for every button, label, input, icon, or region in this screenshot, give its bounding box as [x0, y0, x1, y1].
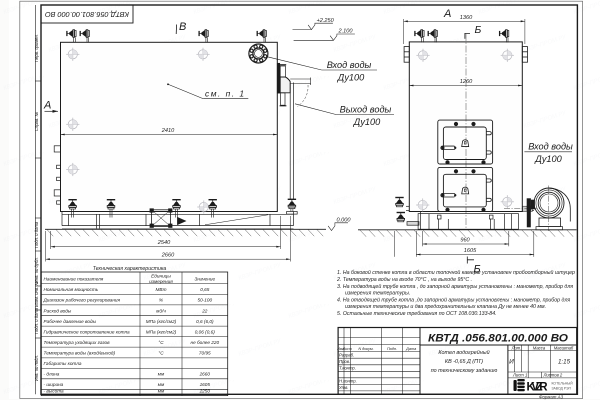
- svg-text:22: 22: [201, 309, 208, 314]
- svg-text:Габариты котла: Габариты котла: [44, 361, 82, 366]
- svg-text:Масса: Масса: [533, 345, 546, 350]
- svg-text:Ду100: Ду100: [534, 154, 562, 164]
- svg-text:КВ -0,65 Д (ПТ): КВ -0,65 Д (ПТ): [445, 359, 483, 365]
- svg-text:А: А: [43, 100, 51, 112]
- svg-text:ЗАВОД РЭП: ЗАВОД РЭП: [552, 386, 572, 390]
- svg-text:2660: 2660: [161, 253, 175, 259]
- svg-text:Расход воды: Расход воды: [44, 309, 72, 314]
- svg-text:70/95: 70/95: [199, 351, 211, 356]
- svg-text:KVZR: KVZR: [527, 382, 549, 394]
- svg-text:МПа (кгс/см2): МПа (кгс/см2): [146, 329, 177, 334]
- svg-text:Подп. и дата: Подп. и дата: [34, 221, 39, 248]
- svg-text:0,65: 0,65: [200, 287, 210, 292]
- svg-text:И: И: [509, 359, 514, 366]
- svg-text:%: %: [159, 298, 163, 303]
- svg-text:1. На боковой стенке котла в: 1. На боковой стенке котла в области топ…: [337, 269, 575, 276]
- svg-text:МВт: МВт: [156, 287, 167, 292]
- svg-text:Подп.: Подп.: [387, 347, 397, 351]
- svg-text:МПа (кгс/см2): МПа (кгс/см2): [146, 319, 177, 324]
- svg-text:измерения температуры.: измерения температуры.: [345, 291, 410, 297]
- svg-text:4. На отводящей трубе котла ,: 4. На отводящей трубе котла ,до запорной…: [337, 297, 570, 304]
- svg-text:КОТЕЛЬНЫЙ: КОТЕЛЬНЫЙ: [552, 382, 574, 386]
- svg-text:Инв. № подл.: Инв. № подл.: [34, 355, 39, 381]
- svg-text:Номинальная мощность: Номинальная мощность: [44, 287, 99, 292]
- svg-text:Масштаб: Масштаб: [554, 345, 574, 350]
- svg-text:измерения: измерения: [149, 279, 173, 284]
- svg-text:Справ. №: Справ. №: [34, 112, 39, 131]
- svg-text:1605: 1605: [200, 382, 211, 387]
- svg-text:по техническому заданию: по техническому заданию: [431, 368, 498, 374]
- svg-text:Вход воды: Вход воды: [528, 142, 573, 152]
- svg-text:Котел водогрейный: Котел водогрейный: [438, 349, 489, 356]
- svg-text:Утв.: Утв.: [339, 385, 349, 390]
- svg-text:измерения температуры и два пр: измерения температуры и два предохраните…: [345, 304, 546, 310]
- svg-text:Пров.: Пров.: [339, 359, 350, 364]
- svg-text:50-100: 50-100: [197, 298, 212, 303]
- svg-text:0.000: 0.000: [337, 218, 352, 224]
- svg-text:Диапазон рабочего регулировани: Диапазон рабочего регулирования: [43, 298, 121, 303]
- svg-text:мм: мм: [158, 372, 165, 377]
- svg-text:2.100: 2.100: [338, 29, 354, 35]
- svg-text:Наименование показателя: Наименование показателя: [44, 277, 104, 282]
- svg-text:+2.250: +2.250: [317, 18, 335, 24]
- svg-text:В: В: [179, 21, 186, 33]
- svg-text:- длина: - длина: [44, 372, 60, 377]
- svg-text:Ду100: Ду100: [353, 117, 381, 127]
- svg-text:Инв. № дубл.: Инв. № дубл.: [34, 257, 39, 283]
- svg-text:см. п. 1: см. п. 1: [205, 89, 246, 99]
- svg-text:Температура уходящих газов: Температура уходящих газов: [44, 340, 111, 345]
- svg-text:КВТД.056.801.00.000 ВО: КВТД.056.801.00.000 ВО: [45, 10, 129, 19]
- svg-text:0,6 (6,0): 0,6 (6,0): [196, 319, 214, 324]
- svg-text:мм: мм: [158, 388, 165, 393]
- svg-text:Формат А3: Формат А3: [539, 394, 564, 399]
- svg-text:960: 960: [460, 238, 470, 244]
- svg-text:1260: 1260: [460, 79, 473, 85]
- svg-text:Рабочее давление воды: Рабочее давление воды: [44, 319, 97, 324]
- svg-text:не более 220: не более 220: [190, 340, 219, 345]
- svg-text:Лист 1: Лист 1: [512, 372, 527, 377]
- svg-text:2. Температура воды на входе: 2. Температура воды на входе 70°С , на в…: [336, 277, 472, 283]
- svg-text:- высота: - высота: [44, 388, 65, 393]
- svg-text:Б: Б: [475, 24, 482, 36]
- svg-text:1605: 1605: [464, 248, 477, 254]
- svg-text:м3/ч: м3/ч: [156, 309, 166, 314]
- svg-text:Ду100: Ду100: [337, 73, 365, 83]
- svg-text:N докум.: N докум.: [358, 347, 373, 351]
- svg-text:°С: °С: [158, 340, 164, 345]
- svg-text:Гидравлическое сопротивление к: Гидравлическое сопротивление котла: [44, 329, 131, 334]
- svg-text:2540: 2540: [157, 240, 171, 246]
- svg-text:Перв. примен.: Перв. примен.: [34, 34, 39, 62]
- svg-text:Взам. инв. №: Взам. инв. №: [34, 281, 39, 307]
- svg-text:0,06 (0,6): 0,06 (0,6): [195, 329, 216, 334]
- svg-text:1360: 1360: [460, 15, 473, 21]
- svg-text:Подп. и дата: Подп. и дата: [34, 307, 39, 334]
- svg-text:Н.контр.: Н.контр.: [339, 378, 357, 383]
- svg-text:Техническая характеристика: Техническая характеристика: [93, 266, 167, 272]
- svg-text:Лист: Лист: [342, 347, 352, 351]
- svg-text:Листов 2: Листов 2: [543, 372, 563, 377]
- svg-text:А: А: [443, 8, 451, 20]
- svg-text:мм: мм: [158, 382, 165, 387]
- svg-text:Единицы: Единицы: [151, 274, 171, 279]
- svg-text:Разраб.: Разраб.: [339, 352, 354, 357]
- svg-text:3. На подводящей трубе котла: 3. На подводящей трубе котла , до запорн…: [337, 283, 573, 290]
- svg-text:5. Остальные технические треб: 5. Остальные технические требования по О…: [337, 311, 497, 317]
- svg-text:Температура воды (вход/выход): Температура воды (вход/выход): [44, 351, 116, 356]
- svg-text:Значение: Значение: [195, 277, 216, 282]
- svg-text:КВТД .056.801.00.000 ВО: КВТД .056.801.00.000 ВО: [428, 332, 568, 344]
- svg-text:Дата: Дата: [405, 347, 416, 351]
- svg-text:Выход воды: Выход воды: [340, 104, 392, 114]
- svg-text:1:15: 1:15: [558, 359, 571, 366]
- svg-text:Вход воды: Вход воды: [327, 60, 372, 70]
- svg-text:°С: °С: [158, 351, 164, 356]
- svg-text:2250: 2250: [199, 388, 211, 393]
- svg-text:2660: 2660: [199, 372, 211, 377]
- svg-text:Т.контр.: Т.контр.: [339, 365, 356, 370]
- svg-text:2410: 2410: [161, 128, 175, 134]
- svg-text:Лит.: Лит.: [511, 345, 522, 350]
- svg-text:- ширина: - ширина: [44, 382, 64, 387]
